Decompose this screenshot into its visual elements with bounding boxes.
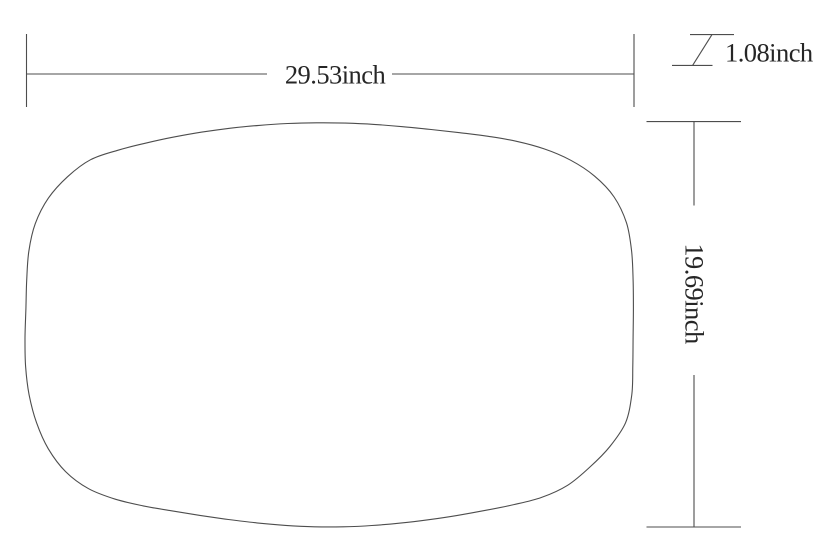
svg-text:29.53inch: 29.53inch bbox=[285, 60, 386, 90]
svg-text:19.69inch: 19.69inch bbox=[680, 243, 710, 344]
svg-text:1.08inch: 1.08inch bbox=[725, 38, 813, 68]
